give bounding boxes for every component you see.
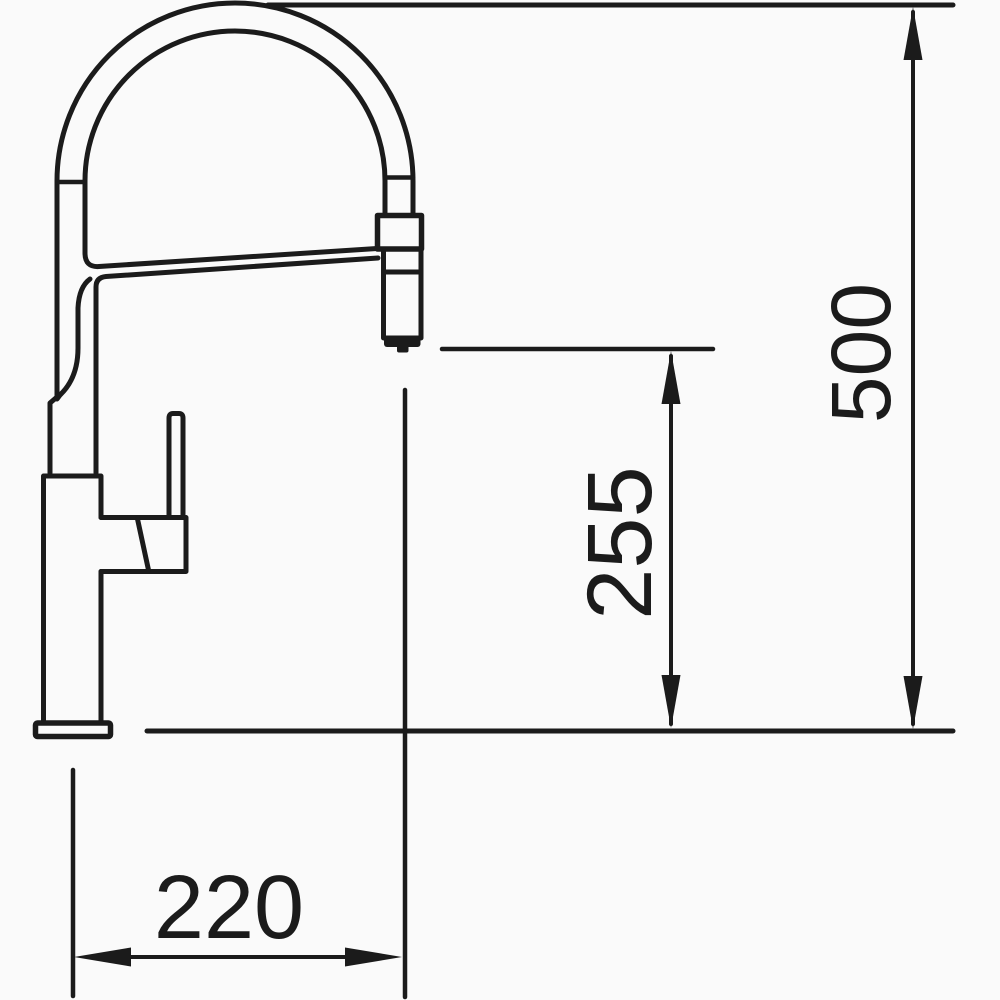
spray-head-body	[384, 249, 422, 338]
faucet-body	[44, 476, 102, 723]
dim-220-arrow-right	[345, 948, 402, 967]
dimension-spout-height: 255	[569, 351, 681, 728]
hose-s-curve	[57, 279, 90, 399]
dim-500-arrow-up	[904, 7, 923, 60]
reference-lines	[73, 5, 953, 997]
aerator-nozzle-nub	[397, 345, 409, 353]
dim-500-arrow-down	[904, 676, 923, 729]
handle-lever	[169, 414, 183, 518]
hose-bottom-and-riser-right	[96, 258, 378, 473]
dimension-overall-height: 500	[814, 7, 923, 729]
faucet-outline	[36, 3, 422, 737]
drawing-sheet: 500 255 220	[0, 0, 1000, 1000]
base-plate	[36, 723, 111, 737]
spout-arch-inner-and-hose-top	[85, 31, 385, 267]
dim-220-label: 220	[154, 858, 304, 958]
dimension-spout-reach: 220	[74, 858, 402, 967]
spout-arch-outer	[50, 3, 413, 473]
dim-255-arrow-up	[662, 351, 681, 404]
spray-coupling-block	[378, 216, 422, 250]
dim-220-arrow-left	[74, 948, 131, 967]
faucet-dimension-drawing: 500 255 220	[0, 0, 1000, 1000]
handle-pivot-diagonal	[138, 519, 149, 570]
dim-255-arrow-down	[662, 675, 681, 728]
dim-500-label: 500	[814, 283, 908, 423]
dim-255-label: 255	[569, 466, 671, 620]
